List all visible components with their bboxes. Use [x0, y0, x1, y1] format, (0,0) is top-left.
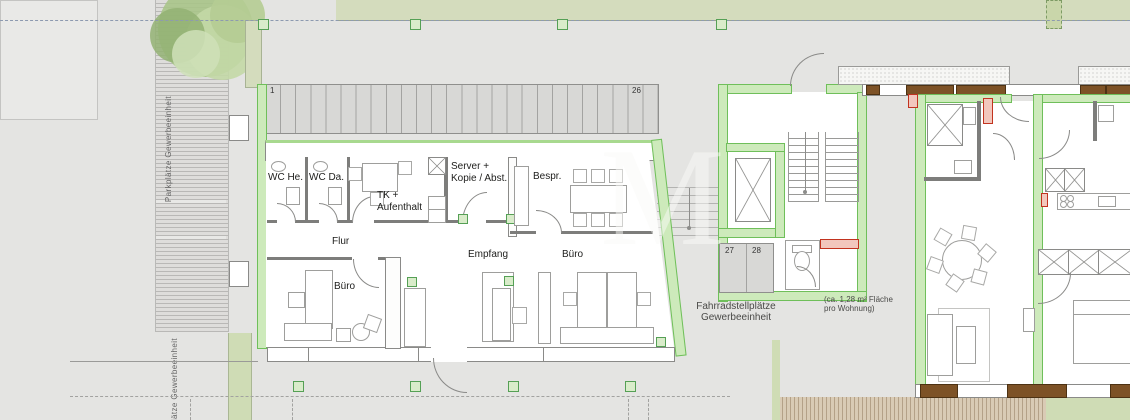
- green-verge-topright: [1046, 0, 1062, 29]
- divider-cabinet: [538, 272, 551, 344]
- parking-mark: [648, 399, 649, 420]
- stall-number-28: 28: [752, 246, 761, 255]
- sofa: [927, 314, 953, 376]
- corridor-wall: [374, 220, 462, 223]
- chair: [591, 169, 605, 183]
- red-accent: [983, 98, 993, 124]
- kitchenette-unit: [428, 209, 446, 223]
- staircase-walkline-dot: [803, 190, 807, 194]
- room-label-bespr: Bespr.: [533, 171, 561, 182]
- green-verge-left: [245, 20, 262, 88]
- wood-sill: [1007, 384, 1067, 398]
- terrace-paving: [778, 397, 1046, 420]
- cabinet: [514, 166, 529, 226]
- chair: [573, 213, 587, 227]
- lawn-strip-mid: [772, 340, 780, 420]
- stall-number-last: 26: [632, 86, 641, 95]
- room-label-tk-1: TK +: [377, 190, 398, 201]
- wardrobe: [1045, 168, 1066, 192]
- chair: [591, 213, 605, 227]
- fence-post: [258, 19, 269, 30]
- wood-lintel: [866, 85, 880, 95]
- balcony-strip: [1078, 66, 1130, 85]
- bike-label-line2: Gewerbeeinheit: [696, 312, 776, 323]
- room-label-buero-left: Büro: [334, 281, 355, 292]
- apt1-wall-left: [915, 94, 926, 389]
- corridor-wall: [267, 220, 277, 223]
- coffee-table: [956, 326, 976, 364]
- window-mullion: [418, 348, 419, 361]
- bathroom-wall: [924, 177, 981, 181]
- green-verge-top: [336, 0, 1130, 21]
- canopy-post: [625, 381, 636, 392]
- conference-table: [570, 185, 627, 213]
- lawn-strip-right: [1046, 397, 1130, 420]
- parking-strip-gap: [156, 236, 226, 239]
- site-column: [229, 115, 249, 141]
- parking-mark: [190, 399, 191, 420]
- room-label-empfang: Empfang: [468, 249, 508, 260]
- desk: [305, 270, 333, 329]
- chair: [637, 292, 651, 306]
- parkplaetze-label-bottom: Parkplätze Gewerbeeinheit: [164, 338, 184, 420]
- sink: [954, 160, 972, 174]
- parking-stall-row: [265, 84, 659, 134]
- site-wall-line: [70, 361, 258, 362]
- chair: [609, 213, 623, 227]
- steps-walkline: [689, 188, 690, 228]
- parkplaetze-label: Parkplätze Gewerbeeinheit: [158, 88, 178, 210]
- stove-burner: [1067, 201, 1074, 208]
- wall: [385, 257, 401, 349]
- desk: [284, 323, 332, 341]
- table: [362, 163, 398, 192]
- fence-post: [410, 19, 421, 30]
- room-label-buero-right: Büro: [562, 249, 583, 260]
- area-note-line2: pro Wohnung): [824, 304, 914, 313]
- bespr-wall: [561, 231, 653, 234]
- site-column: [229, 261, 249, 287]
- sink: [271, 161, 286, 172]
- column: [458, 214, 468, 224]
- room-label-wc-he: WC He.: [268, 172, 303, 183]
- kitchenette-unit: [428, 196, 446, 210]
- column: [504, 276, 514, 286]
- bed-pillow-line: [1073, 314, 1130, 315]
- wardrobe: [1068, 249, 1100, 275]
- core-wall-top: [718, 84, 792, 94]
- room-label-wc-da: WC Da.: [309, 172, 344, 183]
- buero-wall: [267, 257, 352, 260]
- corridor-wall: [337, 220, 352, 223]
- parking-mark: [292, 399, 293, 420]
- core-wall-inner-v: [775, 143, 785, 238]
- room-label-tk-2: Aufenthalt: [377, 202, 422, 213]
- desk: [607, 272, 637, 329]
- entrance-door-arc: [790, 53, 824, 86]
- fence-post: [716, 19, 727, 30]
- bespr-wall: [510, 231, 536, 234]
- chair: [961, 225, 977, 241]
- toilet: [328, 187, 342, 205]
- exit-door-arc: [433, 358, 467, 393]
- staircase-divider: [818, 132, 826, 202]
- tree-foliage: [172, 30, 220, 78]
- elevator: [735, 158, 771, 222]
- chair: [512, 307, 527, 324]
- small-table: [336, 328, 351, 342]
- column: [656, 337, 666, 347]
- balcony-strip: [838, 66, 1010, 85]
- stall-number-27: 27: [725, 246, 734, 255]
- canopy-post: [293, 381, 304, 392]
- floor-plan: Parkplätze Gewerbeeinheit Parkplätze Gew…: [0, 0, 1130, 420]
- steps-walkline-dot: [687, 226, 691, 230]
- kitchenette-cabinet: [428, 157, 446, 175]
- area-note: (ca. 1,28 m² Fläche pro Wohnung): [824, 295, 914, 313]
- bed: [1073, 300, 1130, 364]
- window-mullion: [308, 348, 309, 361]
- canopy-post: [508, 381, 519, 392]
- lawn-strip-left: [228, 333, 252, 420]
- nightstand: [1023, 308, 1035, 332]
- sink: [313, 161, 328, 172]
- canopy-post: [410, 381, 421, 392]
- wood-sill: [1110, 384, 1130, 398]
- side-table: [288, 292, 305, 308]
- stove-burner: [1060, 201, 1067, 208]
- core-wall-inner-h: [726, 143, 785, 152]
- shower: [927, 104, 963, 146]
- corridor-wall: [295, 220, 319, 223]
- fence-post: [557, 19, 568, 30]
- area-note-line1: (ca. 1,28 m² Fläche: [824, 295, 914, 304]
- apt-wall-lining: [915, 94, 1012, 103]
- bathroom2-fixture: [1098, 105, 1114, 122]
- red-accent: [908, 94, 918, 108]
- room-label-server-1: Server +: [451, 161, 489, 172]
- red-accent: [1041, 193, 1048, 207]
- bench-red: [820, 239, 859, 249]
- room-label-server-2: Kopie / Abst.: [451, 173, 507, 184]
- desk: [577, 272, 607, 329]
- chair: [348, 167, 362, 181]
- bike-label: Fahrradstellplätze Gewerbeeinheit: [696, 301, 776, 323]
- bike-label-line1: Fahrradstellplätze: [696, 301, 776, 312]
- parking-mark: [628, 399, 629, 420]
- chair: [563, 292, 577, 306]
- shelf: [404, 288, 426, 347]
- bathroom-wall: [977, 101, 981, 181]
- toilet: [286, 187, 300, 205]
- wardrobe: [1064, 168, 1085, 192]
- toilet: [963, 107, 976, 125]
- wardrobe: [1038, 249, 1070, 275]
- wardrobe: [1098, 249, 1130, 275]
- parking-lot-outline: [0, 0, 98, 120]
- kitchen-sink: [1098, 196, 1116, 207]
- staircase-walkline: [805, 132, 806, 192]
- stall-number-first: 1: [270, 86, 274, 95]
- wood-sill: [920, 384, 958, 398]
- wing-wall-bottom: [267, 347, 675, 362]
- window-mullion: [543, 348, 544, 361]
- chair: [609, 169, 623, 183]
- chair: [398, 161, 412, 175]
- column: [407, 277, 417, 287]
- reception-desk-inner: [492, 288, 511, 341]
- site-line-dashed-bottom: [70, 396, 730, 397]
- chair: [573, 169, 587, 183]
- room-label-flur: Flur: [332, 236, 349, 247]
- apt-wall-lining: [1033, 94, 1130, 103]
- wall: [305, 157, 308, 222]
- bathroom2-wall: [1093, 101, 1097, 141]
- sideboard: [560, 327, 654, 344]
